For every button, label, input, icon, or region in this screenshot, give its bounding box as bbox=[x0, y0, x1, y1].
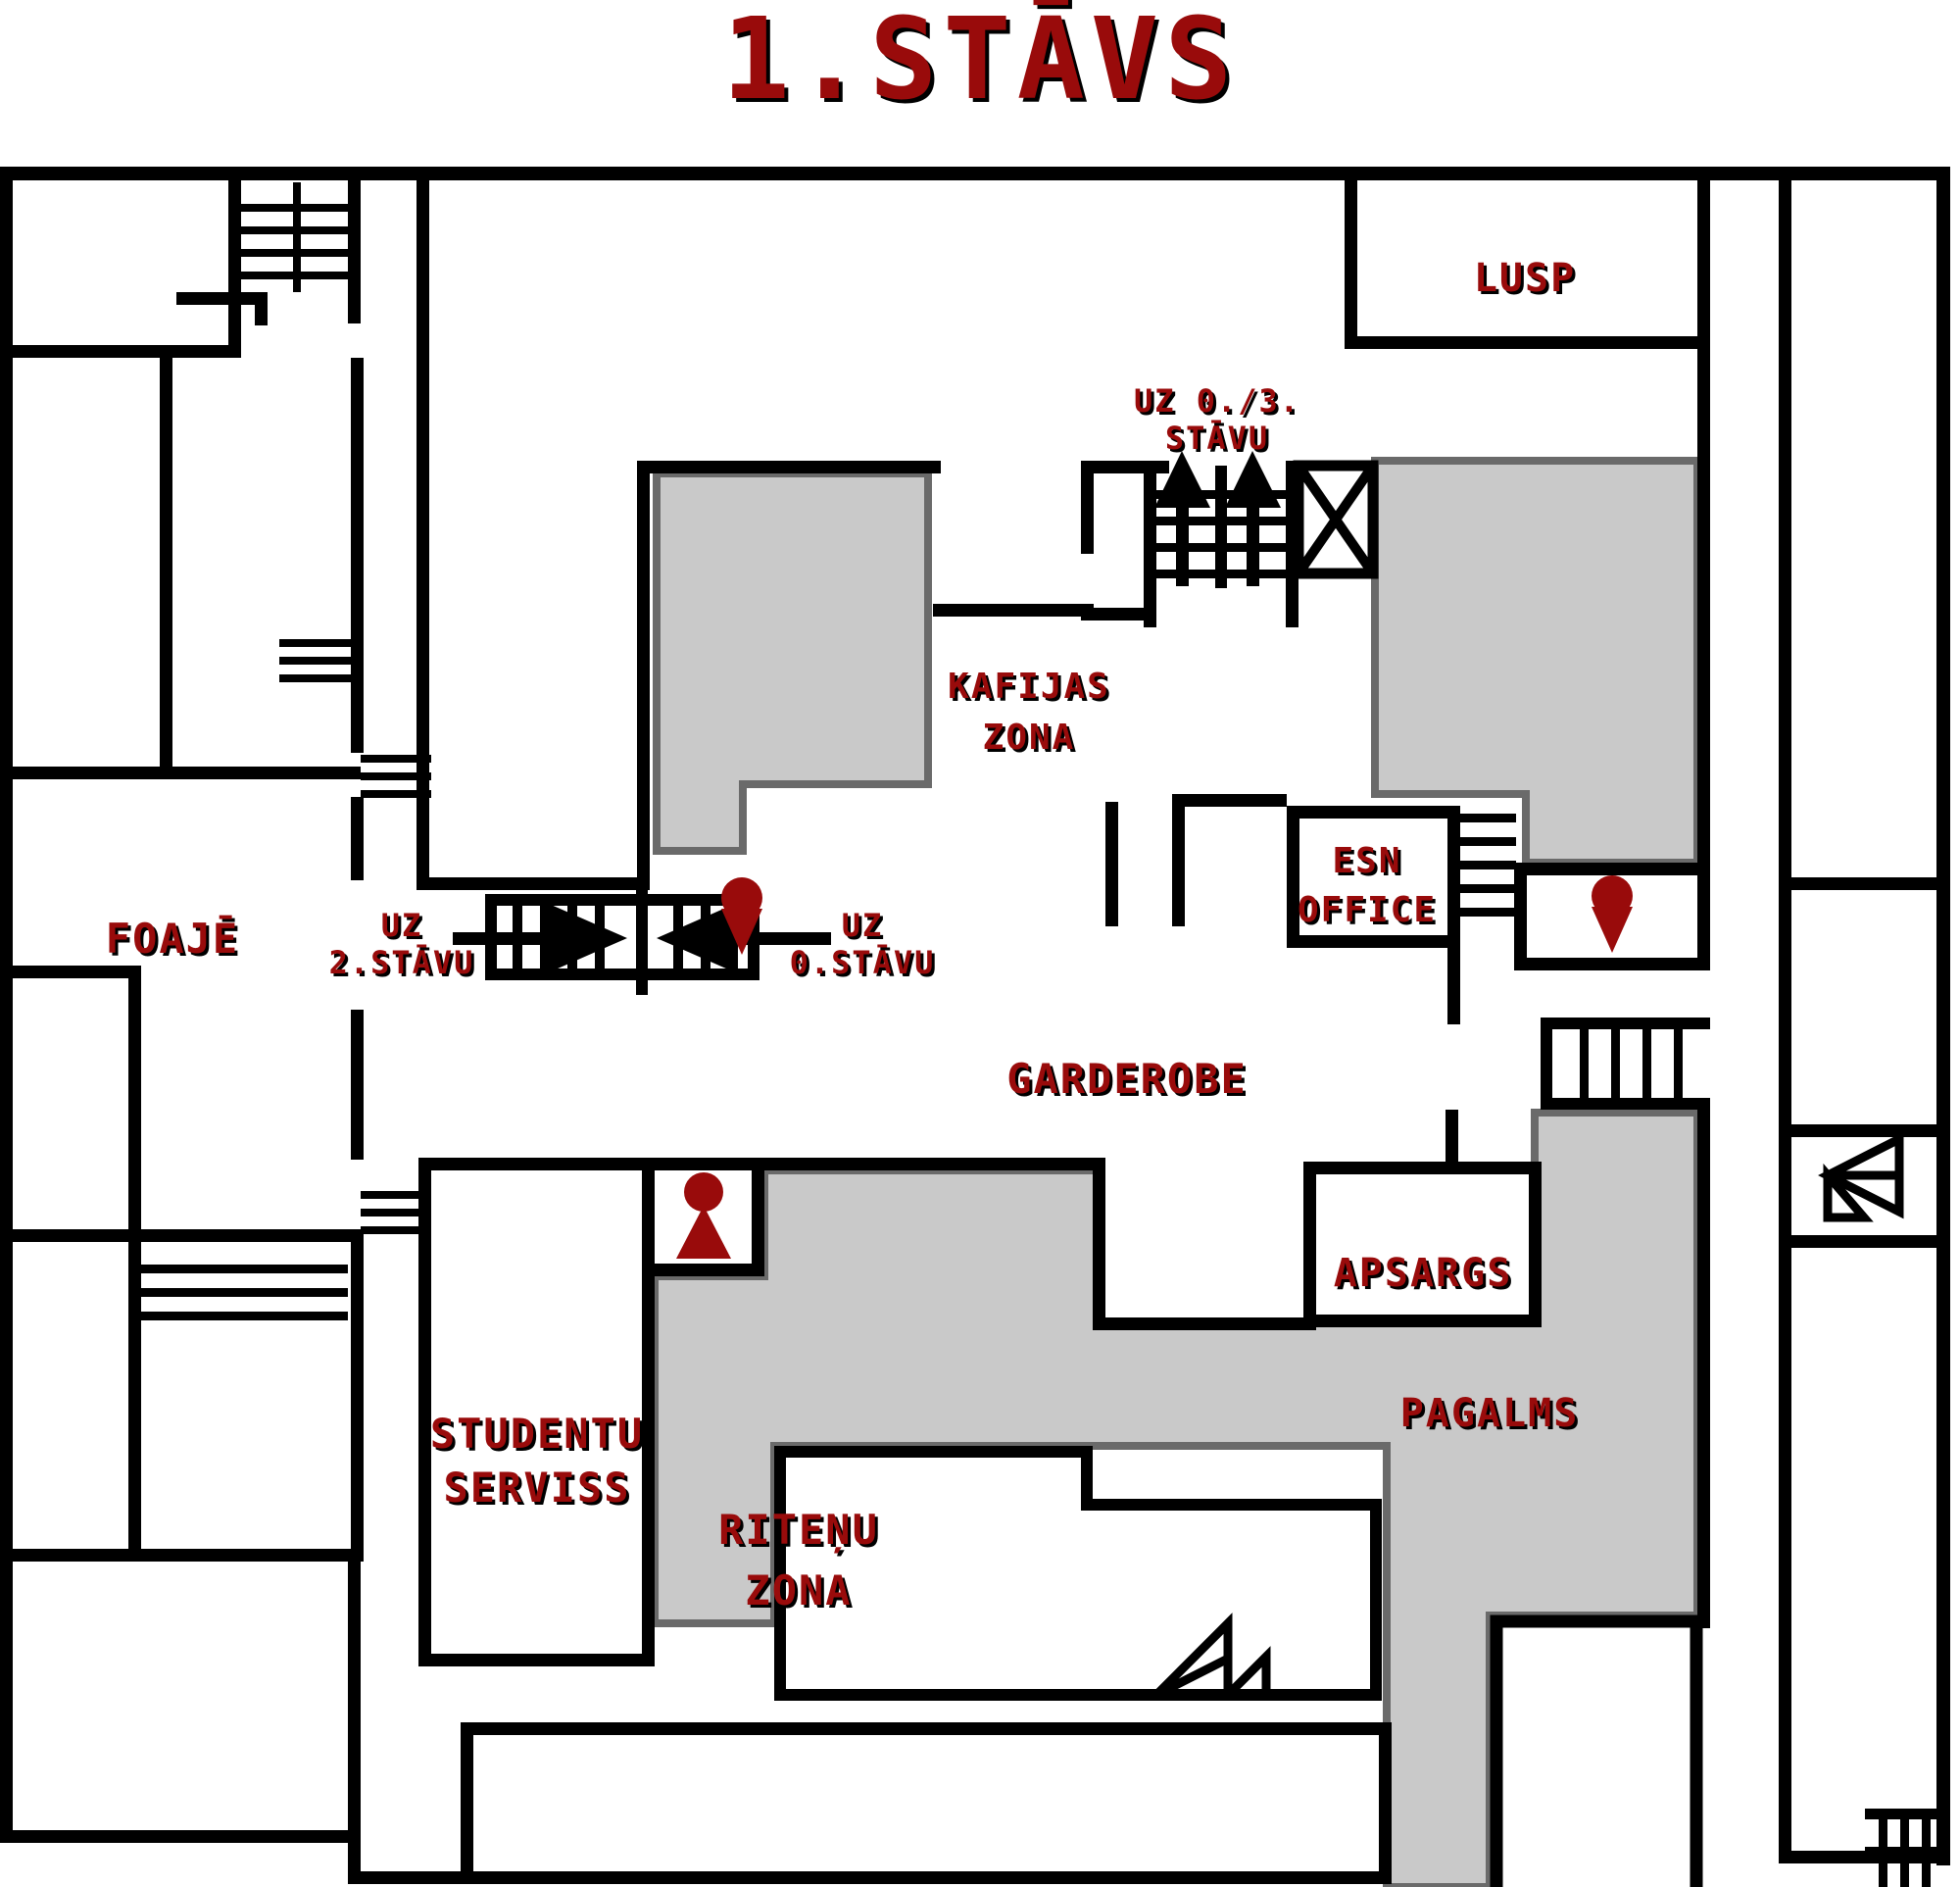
wall bbox=[348, 167, 361, 323]
wall bbox=[1345, 336, 1710, 349]
room-label-garderobe: GARDEROBE bbox=[1006, 1055, 1248, 1103]
stair-label-uz03-line1: UZ 0./3. bbox=[1134, 382, 1300, 420]
wall bbox=[933, 604, 1094, 617]
wall bbox=[228, 167, 241, 358]
wall bbox=[1105, 802, 1118, 926]
wall bbox=[351, 1010, 364, 1160]
wall bbox=[1514, 958, 1710, 970]
wall bbox=[637, 461, 650, 890]
wall bbox=[1447, 806, 1460, 948]
wall bbox=[1779, 1124, 1950, 1137]
stair-label-uz2-line2: 2.STĀVU bbox=[329, 944, 475, 981]
wall bbox=[418, 1654, 655, 1666]
wall bbox=[1936, 167, 1950, 1865]
wall bbox=[0, 1549, 361, 1562]
stair-label-uz2-line1: UZ bbox=[381, 907, 423, 944]
wall bbox=[637, 461, 941, 473]
wall bbox=[351, 797, 364, 880]
wall bbox=[752, 1158, 764, 1276]
wall bbox=[1172, 802, 1185, 926]
wall bbox=[416, 167, 429, 890]
wall bbox=[0, 167, 1950, 180]
wall bbox=[176, 292, 268, 305]
stair-label-uz03-line2: STĀVU bbox=[1165, 420, 1269, 457]
wall bbox=[0, 167, 13, 1843]
wall bbox=[1779, 167, 1791, 1863]
wall bbox=[1303, 1315, 1542, 1327]
room-label-studentu-line2: SERVISS bbox=[443, 1464, 630, 1512]
wall bbox=[128, 966, 141, 1562]
wall bbox=[1303, 1162, 1316, 1327]
wall bbox=[351, 358, 364, 753]
wall bbox=[1094, 461, 1169, 473]
wall bbox=[0, 966, 128, 978]
room-label-kafijas-line2: ZONA bbox=[983, 718, 1076, 758]
wall bbox=[1529, 1162, 1542, 1327]
wall bbox=[1093, 1158, 1105, 1330]
wall bbox=[1791, 1235, 1950, 1248]
room-label-ritenu-line2: ZONA bbox=[745, 1566, 852, 1614]
wall bbox=[1287, 806, 1460, 819]
page-title: 1.STĀVS bbox=[722, 0, 1239, 125]
stair-step bbox=[240, 272, 348, 279]
wall bbox=[8, 767, 361, 779]
room-label-ritenu-line1: RITEŅU bbox=[718, 1506, 879, 1554]
wall bbox=[416, 877, 650, 890]
elevator-x-icon bbox=[1298, 466, 1373, 573]
wall bbox=[461, 1722, 473, 1884]
wall bbox=[1081, 608, 1151, 621]
wall bbox=[255, 292, 268, 325]
room-label-kafijas-line1: KAFIJAS bbox=[948, 667, 1110, 707]
stair-step bbox=[240, 204, 348, 212]
floor-plan: 1.STĀVS LUSP UZ 0./3. STĀVU KAFIJAS ZONA… bbox=[0, 0, 1960, 1887]
stair-label-uz0-line1: UZ bbox=[842, 907, 884, 944]
room-label-lusp: LUSP bbox=[1474, 256, 1576, 301]
wall bbox=[0, 345, 240, 358]
room-label-esn-line1: ESN bbox=[1332, 841, 1401, 881]
wall bbox=[1697, 1103, 1710, 1628]
wall bbox=[1345, 167, 1357, 349]
wall bbox=[1697, 167, 1710, 970]
room-label-apsargs: APSARGS bbox=[1334, 1251, 1513, 1296]
wall bbox=[1287, 935, 1460, 948]
room-label-studentu-line1: STUDENTU bbox=[430, 1410, 644, 1458]
wall bbox=[1447, 948, 1460, 1024]
wall bbox=[351, 1234, 364, 1562]
stair-label-uz0-line2: 0.STĀVU bbox=[790, 944, 936, 981]
wall bbox=[1514, 863, 1710, 875]
wall bbox=[8, 1229, 361, 1242]
wall bbox=[642, 1264, 764, 1276]
room-label-foaje: FOAJĒ bbox=[106, 915, 239, 963]
room-label-pagalms: PAGALMS bbox=[1400, 1391, 1580, 1436]
wall bbox=[461, 1722, 1392, 1735]
wall bbox=[160, 358, 172, 767]
wall bbox=[0, 1830, 361, 1843]
stair-step bbox=[240, 226, 348, 234]
stair-step bbox=[240, 249, 348, 257]
floor-plan-svg: 1.STĀVS LUSP UZ 0./3. STĀVU KAFIJAS ZONA… bbox=[0, 0, 1960, 1887]
wall bbox=[348, 1871, 1392, 1884]
wall bbox=[1081, 461, 1094, 554]
wall bbox=[1791, 877, 1950, 890]
wall bbox=[1172, 794, 1287, 807]
wall bbox=[1379, 1722, 1392, 1884]
wall bbox=[1093, 1317, 1316, 1330]
room-label-esn-line2: OFFICE bbox=[1298, 890, 1437, 930]
wall bbox=[1303, 1162, 1542, 1174]
room-bottom-right bbox=[1496, 1621, 1696, 1887]
wall bbox=[1144, 461, 1156, 627]
